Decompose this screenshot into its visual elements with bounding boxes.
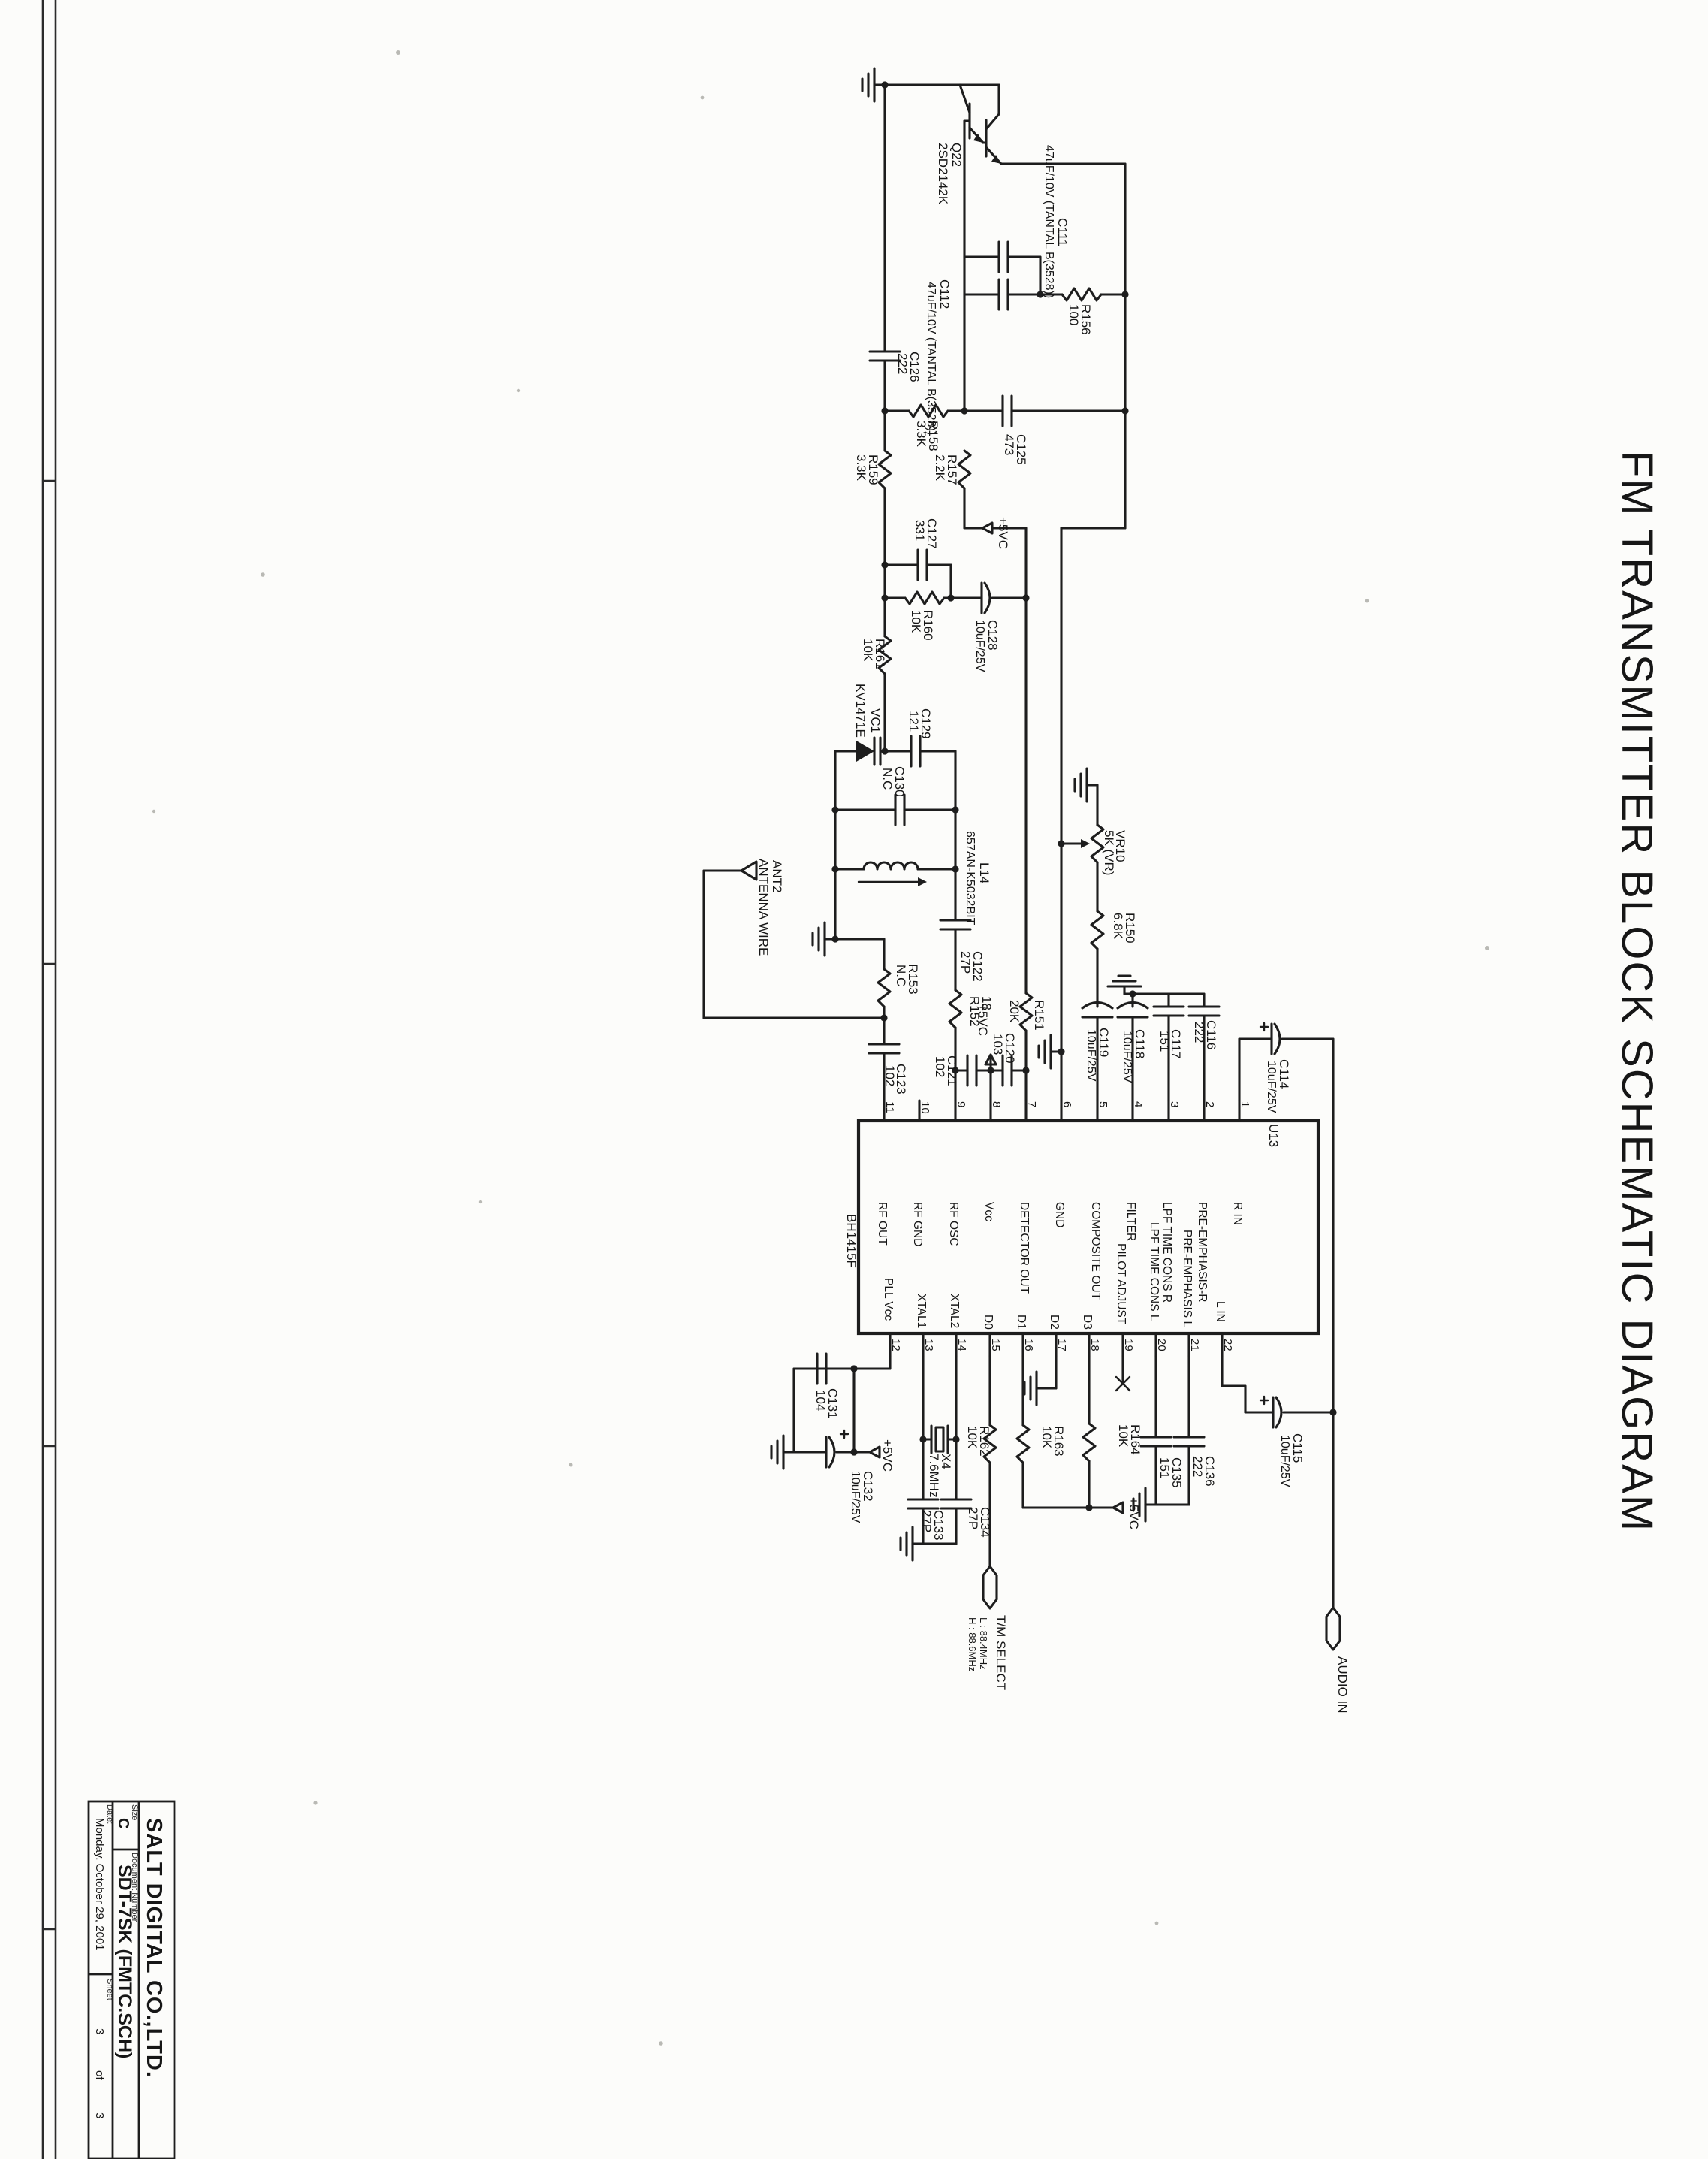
svg-text:222: 222: [1192, 1022, 1206, 1043]
svg-text:D0: D0: [982, 1315, 994, 1330]
svg-text:RF GND: RF GND: [911, 1202, 924, 1246]
svg-text:10uF/25V: 10uF/25V: [849, 1471, 862, 1523]
svg-text:L IN: L IN: [1214, 1301, 1227, 1322]
svg-text:8: 8: [990, 1101, 1003, 1107]
svg-text:3.3K: 3.3K: [854, 454, 868, 482]
capacitor-c123-icon: [869, 1044, 899, 1053]
svg-text:17: 17: [1055, 1339, 1068, 1351]
power-5v-icon: [870, 1447, 880, 1457]
svg-text:ANTENNA WIRE: ANTENNA WIRE: [756, 859, 771, 956]
svg-text:10K: 10K: [909, 610, 923, 633]
svg-text:9: 9: [955, 1101, 967, 1107]
svg-text:PLL Vcc: PLL Vcc: [882, 1278, 895, 1321]
svg-text:H : 88.6MHz: H : 88.6MHz: [967, 1617, 978, 1671]
svg-text:XTAL2: XTAL2: [948, 1294, 961, 1328]
resistor-r164-icon: [1083, 1424, 1095, 1461]
svg-text:10K: 10K: [1040, 1426, 1054, 1449]
svg-text:+5VC: +5VC: [976, 1004, 990, 1036]
svg-text:151: 151: [1157, 1031, 1172, 1052]
svg-text:LPF TIME CONS R: LPF TIME CONS R: [1160, 1202, 1173, 1303]
power-5v-icon: [982, 523, 992, 533]
transistor-q22-icon: [960, 85, 1001, 164]
svg-text:XTAL1: XTAL1: [915, 1294, 928, 1328]
svg-text:T/M SELECT: T/M SELECT: [994, 1615, 1008, 1690]
svg-text:GND: GND: [1053, 1202, 1066, 1227]
svg-text:11: 11: [883, 1101, 896, 1113]
component-labels: Q22 2SD2142K C111 47uF/10V (TANTAL B(352…: [756, 143, 1350, 1714]
svg-text:PRE-EMPHASIS-R: PRE-EMPHASIS-R: [1196, 1202, 1209, 1303]
svg-text:473: 473: [1002, 434, 1016, 455]
resistor-r152-icon: [949, 990, 961, 1028]
svg-text:L : 88.4MHz: L : 88.4MHz: [978, 1617, 989, 1670]
svg-text:102: 102: [883, 1065, 897, 1086]
resistor-r156-icon: [1062, 288, 1101, 300]
svg-text:6: 6: [1061, 1101, 1073, 1107]
svg-text:2SD2142K: 2SD2142K: [936, 143, 950, 205]
svg-text:20: 20: [1155, 1339, 1168, 1351]
capacitor-c129-icon: [911, 736, 920, 766]
svg-text:FILTER: FILTER: [1124, 1202, 1137, 1241]
svg-text:+5VC: +5VC: [996, 517, 1010, 549]
svg-text:19: 19: [1122, 1339, 1135, 1351]
sheet-total: 3: [93, 2112, 106, 2118]
varactor-vc1-icon: [856, 738, 880, 765]
inductor-l14-icon: [859, 862, 927, 886]
ic-pin-names-bottom: PLL Vcc XTAL1 XTAL2 D0 D1 D2 D3 PILOT AD…: [882, 1222, 1227, 1330]
svg-text:LPF TIME CONS L: LPF TIME CONS L: [1148, 1222, 1160, 1321]
svg-text:L14: L14: [977, 862, 991, 883]
capacitor-c115-icon: [1273, 1397, 1281, 1427]
svg-text:Q22: Q22: [949, 143, 964, 167]
drawing-title: FM TRANSMITTER BLOCK SCHEMATIC DIAGRAM: [1613, 451, 1661, 1532]
svg-text:C128: C128: [985, 620, 1000, 651]
svg-text:D3: D3: [1081, 1315, 1094, 1330]
ic-pin-numbers-top: 11 10 9 8 7 6 5 4 3 2 1: [883, 1101, 1251, 1114]
svg-text:47uF/10V (TANTAL B(3528)): 47uF/10V (TANTAL B(3528)): [925, 282, 937, 435]
resistor-r157-icon: [958, 451, 970, 488]
svg-text:121: 121: [907, 711, 921, 732]
ground-icon: [1075, 768, 1097, 802]
svg-text:AUDIO IN: AUDIO IN: [1335, 1656, 1350, 1714]
audio-in-connector-icon: [1326, 1608, 1340, 1650]
sheet-of-label: of: [93, 2070, 106, 2080]
potentiometer-vr10-icon: [1091, 825, 1103, 862]
svg-text:+5VC: +5VC: [880, 1439, 895, 1472]
svg-text:5K (VR): 5K (VR): [1102, 830, 1116, 875]
svg-text:10uF/25V: 10uF/25V: [1121, 1031, 1133, 1083]
capacitor-c114-icon: [1272, 1024, 1280, 1054]
svg-text:COMPOSITE OUT: COMPOSITE OUT: [1089, 1202, 1102, 1300]
capacitor-c128-icon: [982, 583, 990, 613]
svg-text:331: 331: [913, 520, 927, 541]
svg-text:2: 2: [1203, 1101, 1216, 1107]
capacitor-c136-icon: [1174, 1437, 1204, 1446]
svg-text:27P: 27P: [958, 951, 973, 974]
svg-text:10uF/25V: 10uF/25V: [1265, 1061, 1278, 1113]
svg-text:ANT2: ANT2: [770, 860, 784, 892]
svg-text:7: 7: [1025, 1101, 1038, 1107]
svg-text:DETECTOR OUT: DETECTOR OUT: [1018, 1202, 1031, 1294]
resistor-r163-icon: [1017, 1425, 1029, 1463]
svg-text:100: 100: [1067, 304, 1081, 325]
ic-ref: U13: [1266, 1124, 1281, 1147]
ground-icon: [1108, 976, 1141, 994]
svg-text:1: 1: [1239, 1101, 1251, 1107]
svg-text:2.2K: 2.2K: [933, 454, 947, 482]
scanned-schematic-page: FM TRANSMITTER BLOCK SCHEMATIC DIAGRAM: [0, 0, 1708, 2159]
resistor-r160-icon: [905, 592, 944, 604]
svg-text:657AN-K5032BIT: 657AN-K5032BIT: [964, 831, 976, 926]
ground-icon: [1024, 1372, 1047, 1405]
capacitor-c116-icon: [1189, 1007, 1219, 1016]
title-block: SALT DIGITAL CO.,LTD. Size C Document Nu…: [89, 1801, 174, 2159]
schematic-canvas: FM TRANSMITTER BLOCK SCHEMATIC DIAGRAM: [0, 0, 1708, 2159]
svg-text:14: 14: [955, 1339, 968, 1351]
svg-text:N.C: N.C: [880, 768, 895, 790]
svg-text:10uF/25V: 10uF/25V: [1278, 1435, 1291, 1487]
date-value: Monday, October 29, 2001: [93, 1818, 106, 1951]
capacitor-c125-icon: [1003, 396, 1012, 426]
schematic: 11 10 9 8 7 6 5 4 3 2 1 RF OUT RF GND RF…: [704, 68, 1350, 1714]
tm-select-connector-icon: [983, 1566, 997, 1608]
capacitor-c112-icon: [999, 279, 1008, 310]
svg-text:C115: C115: [1290, 1433, 1305, 1463]
svg-text:PILOT ADJUST: PILOT ADJUST: [1115, 1243, 1127, 1325]
capacitor-c117-icon: [1154, 1007, 1184, 1016]
capacitor-c133-icon: [908, 1499, 938, 1508]
svg-text:C118: C118: [1133, 1029, 1147, 1058]
svg-text:12: 12: [889, 1339, 902, 1351]
svg-text:KV1471E: KV1471E: [853, 684, 868, 738]
capacitor-c121-icon: [967, 1055, 976, 1086]
svg-text:18: 18: [1088, 1339, 1101, 1351]
svg-text:10uF/25V: 10uF/25V: [1085, 1029, 1097, 1082]
svg-text:10K: 10K: [861, 639, 875, 662]
svg-text:222: 222: [1190, 1456, 1205, 1477]
antenna-ant2-icon: [741, 862, 756, 880]
svg-text:13: 13: [922, 1339, 935, 1351]
capacitor-c130-icon: [895, 795, 904, 825]
ic-part: BH1415F: [844, 1214, 859, 1268]
company-name: SALT DIGITAL CO.,LTD.: [142, 1818, 166, 2078]
sheet-label: Sheet: [105, 1979, 114, 2000]
resistor-r153-icon: [878, 969, 890, 1007]
svg-text:21: 21: [1188, 1339, 1201, 1351]
svg-text:6.8K: 6.8K: [1111, 913, 1125, 940]
sheet-size: C: [115, 1818, 131, 1828]
svg-text:103: 103: [991, 1034, 1005, 1055]
svg-text:5: 5: [1097, 1101, 1109, 1107]
svg-text:C112: C112: [937, 279, 952, 309]
svg-text:N.C: N.C: [894, 965, 908, 986]
svg-text:PRE-EMPHASIS L: PRE-EMPHASIS L: [1181, 1230, 1193, 1327]
svg-text:222: 222: [895, 353, 910, 374]
resistor-r150-icon: [1091, 911, 1103, 949]
capacitor-c135-icon: [1141, 1437, 1171, 1446]
svg-text:10K: 10K: [965, 1426, 979, 1449]
svg-text:R IN: R IN: [1231, 1202, 1244, 1225]
svg-text:Vcc: Vcc: [982, 1202, 995, 1221]
svg-text:C132: C132: [861, 1471, 875, 1502]
svg-text:+5VC: +5VC: [1127, 1497, 1141, 1529]
capacitor-c111-icon: [999, 242, 1008, 272]
svg-text:C114: C114: [1277, 1059, 1291, 1089]
svg-text:D1: D1: [1015, 1315, 1028, 1330]
svg-text:RF OUT: RF OUT: [876, 1202, 889, 1246]
svg-text:C111: C111: [1055, 218, 1070, 246]
svg-text:10: 10: [919, 1101, 931, 1114]
svg-text:151: 151: [1157, 1457, 1172, 1478]
svg-text:10K: 10K: [1116, 1424, 1130, 1448]
svg-text:102: 102: [933, 1056, 947, 1077]
ic-pin-numbers-bottom: 12 13 14 15 16 17 18 19 20 21 22: [889, 1339, 1234, 1351]
svg-text:22: 22: [1221, 1339, 1234, 1351]
svg-text:15: 15: [989, 1339, 1002, 1351]
svg-text:20K: 20K: [1007, 1000, 1021, 1023]
svg-text:R151: R151: [1032, 1000, 1046, 1031]
svg-text:VC1: VC1: [868, 708, 883, 733]
svg-text:27P: 27P: [966, 1507, 980, 1529]
power-5v-icon: [1113, 1502, 1123, 1513]
doc-number: SDT-7SK (FMTC.SCH): [114, 1865, 135, 2058]
sheet-number: 3: [93, 2028, 106, 2034]
scan-noise: [152, 50, 1489, 2046]
crystal-x4-icon: [923, 1426, 956, 1453]
svg-text:3: 3: [1168, 1101, 1181, 1107]
capacitor-c132-icon: [826, 1437, 834, 1467]
svg-text:47uF/10V (TANTAL B(3528)): 47uF/10V (TANTAL B(3528)): [1043, 145, 1055, 298]
svg-text:10uF/25V: 10uF/25V: [973, 620, 986, 672]
svg-text:27P: 27P: [919, 1510, 934, 1532]
svg-text:16: 16: [1022, 1339, 1035, 1351]
svg-text:104: 104: [813, 1390, 828, 1411]
svg-text:D2: D2: [1048, 1315, 1061, 1330]
svg-text:RF OSC: RF OSC: [947, 1202, 960, 1246]
sheet-border: [43, 0, 56, 2159]
capacitor-c127-icon: [918, 550, 927, 580]
svg-text:7.6MHz: 7.6MHz: [927, 1454, 941, 1498]
svg-text:3.3K: 3.3K: [914, 421, 928, 448]
svg-text:4: 4: [1132, 1101, 1145, 1107]
capacitor-c126-icon: [870, 352, 900, 361]
ground-icon: [771, 1436, 794, 1469]
svg-text:C119: C119: [1097, 1028, 1111, 1057]
